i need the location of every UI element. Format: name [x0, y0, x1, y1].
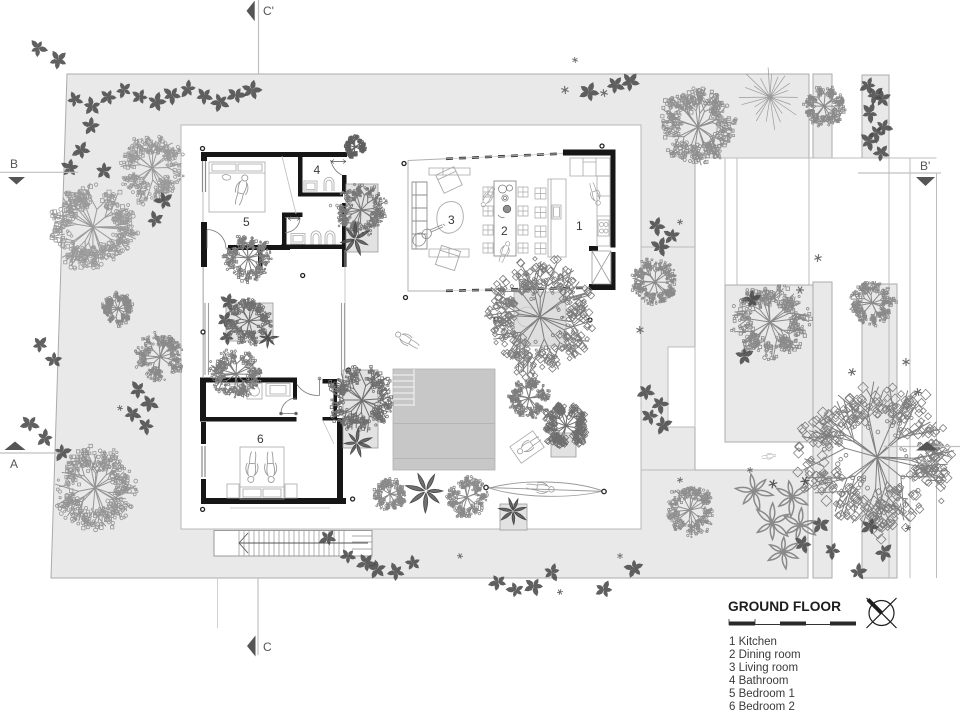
svg-text:2: 2 [501, 224, 508, 238]
svg-text:B': B' [920, 159, 930, 173]
svg-text:5 Bedroom 1: 5 Bedroom 1 [729, 688, 795, 700]
svg-text:6 Bedroom 2: 6 Bedroom 2 [729, 701, 795, 713]
svg-text:A: A [10, 457, 18, 471]
svg-text:3 Living room: 3 Living room [729, 662, 798, 674]
svg-text:4: 4 [314, 163, 321, 177]
svg-text:4 Bathroom: 4 Bathroom [729, 675, 788, 687]
svg-text:1 Kitchen: 1 Kitchen [729, 636, 777, 648]
svg-text:6: 6 [257, 432, 264, 446]
svg-text:B: B [10, 157, 18, 171]
svg-text:5: 5 [243, 215, 250, 229]
svg-text:2 Dining room: 2 Dining room [729, 649, 801, 661]
svg-text:A': A' [919, 457, 928, 469]
svg-text:C': C' [263, 4, 274, 18]
svg-text:C: C [263, 640, 272, 654]
svg-text:1: 1 [576, 219, 583, 233]
svg-text:3: 3 [448, 213, 455, 227]
svg-text:GROUND FLOOR: GROUND FLOOR [728, 598, 841, 614]
